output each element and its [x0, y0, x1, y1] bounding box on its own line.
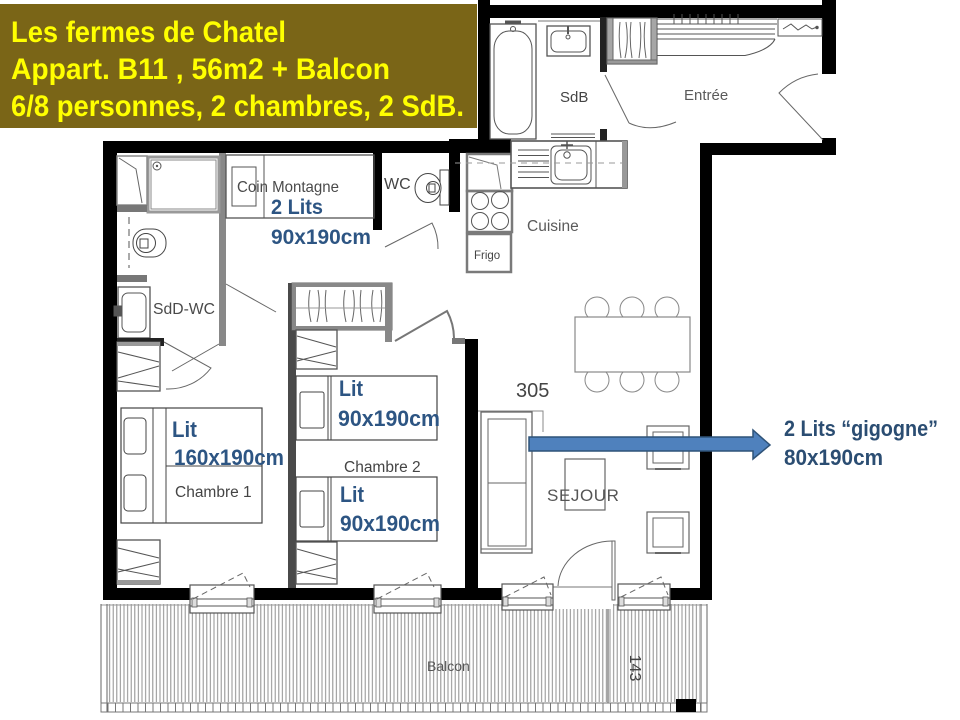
svg-text:Coin Montagne: Coin Montagne: [237, 179, 339, 196]
svg-text:90x190cm: 90x190cm: [271, 226, 371, 249]
svg-text:WC: WC: [384, 176, 411, 193]
svg-text:Les fermes de Chatel: Les fermes de Chatel: [11, 16, 286, 49]
svg-text:160x190cm: 160x190cm: [174, 445, 284, 470]
svg-text:6/8 personnes, 2 chambres, 2 S: 6/8 personnes, 2 chambres, 2 SdB.: [11, 90, 464, 123]
svg-text:2 Lits: 2 Lits: [271, 196, 323, 219]
svg-text:90x190cm: 90x190cm: [340, 511, 440, 536]
svg-text:80x190cm: 80x190cm: [784, 445, 883, 470]
svg-text:Appart. B11 , 56m2 + Balcon: Appart. B11 , 56m2 + Balcon: [11, 53, 390, 86]
svg-text:Lit: Lit: [339, 376, 364, 401]
svg-text:Balcon: Balcon: [427, 658, 470, 674]
svg-text:Cuisine: Cuisine: [527, 218, 579, 235]
svg-text:Chambre 2: Chambre 2: [344, 459, 421, 476]
svg-text:Entrée: Entrée: [684, 87, 728, 104]
svg-text:SdB: SdB: [560, 89, 588, 106]
svg-text:90x190cm: 90x190cm: [338, 406, 440, 431]
svg-text:2 Lits “gigogne”: 2 Lits “gigogne”: [784, 416, 938, 441]
svg-text:143: 143: [626, 655, 643, 682]
svg-text:305: 305: [516, 380, 549, 402]
svg-text:Lit: Lit: [340, 482, 365, 507]
svg-text:SdD-WC: SdD-WC: [153, 301, 215, 318]
svg-text:Frigo: Frigo: [474, 250, 500, 262]
svg-text:SEJOUR: SEJOUR: [547, 486, 620, 505]
svg-text:Chambre 1: Chambre 1: [175, 484, 252, 501]
svg-text:Lit: Lit: [172, 417, 198, 442]
